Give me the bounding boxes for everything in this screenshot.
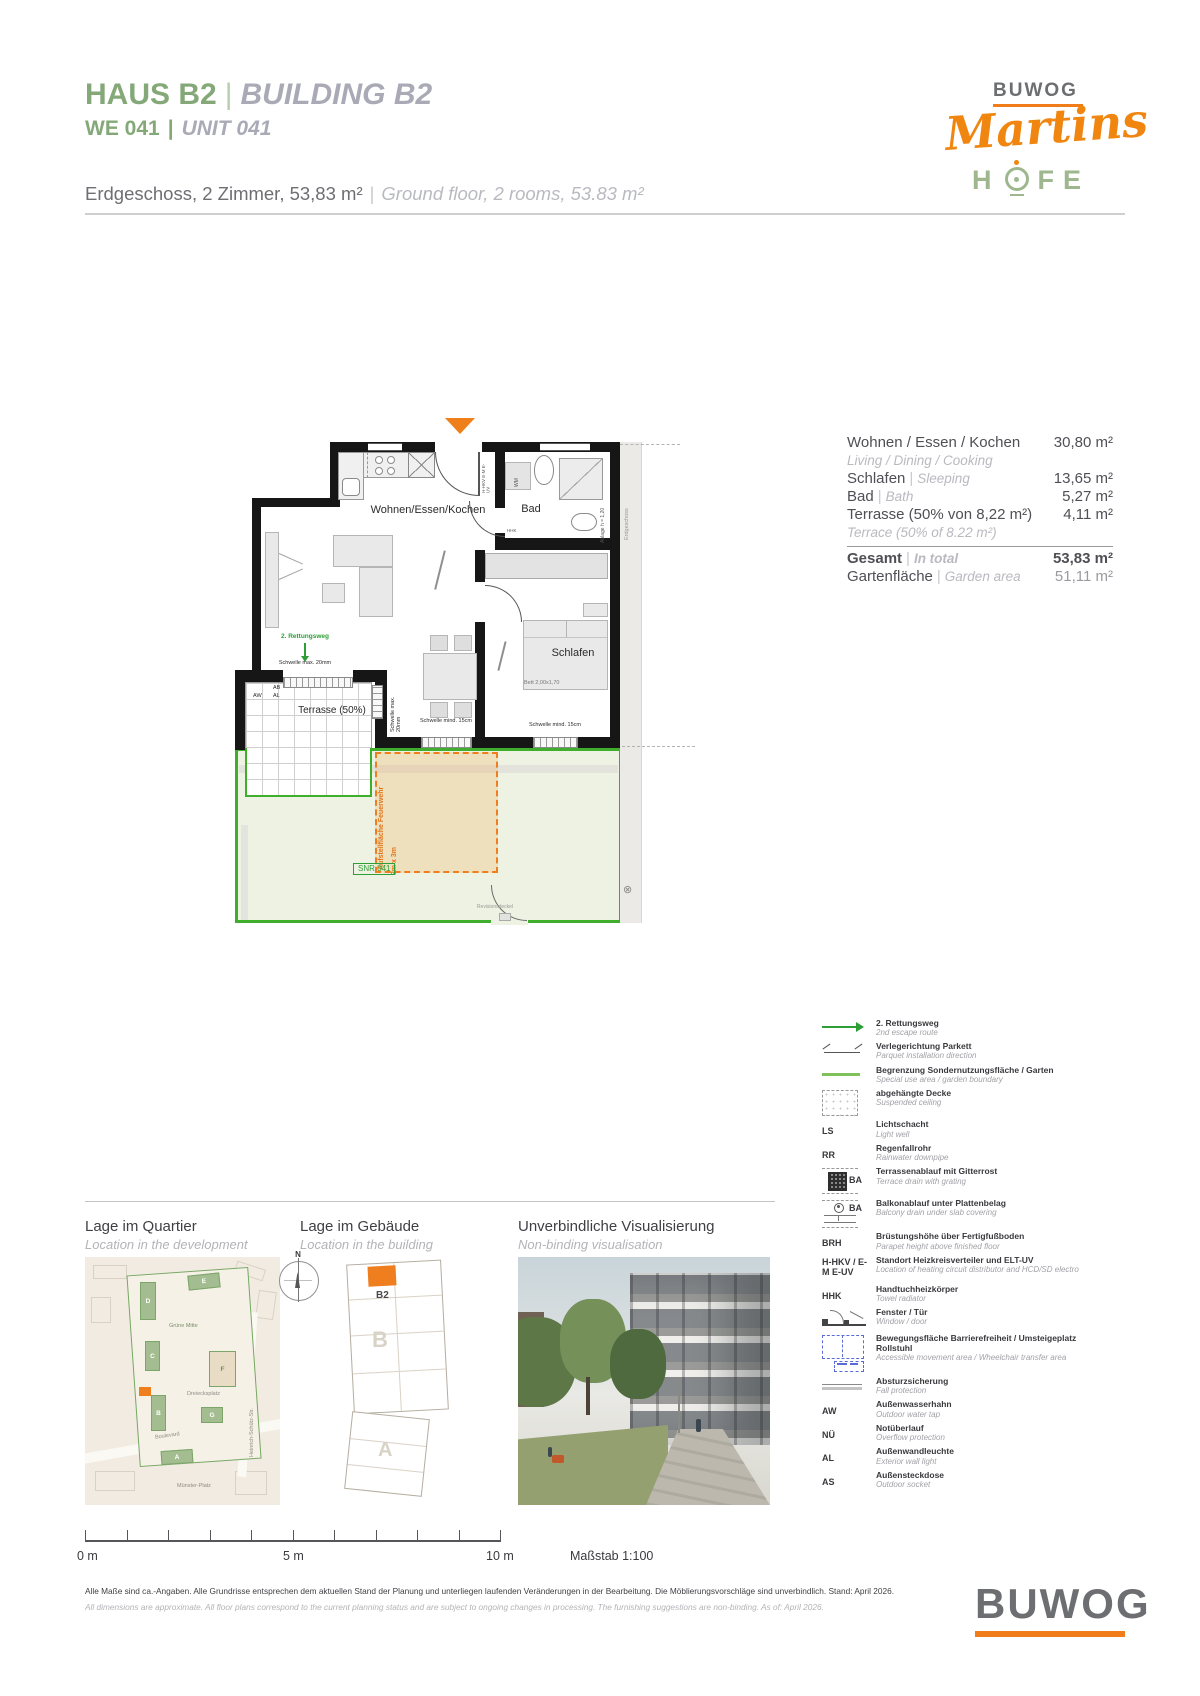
cooktop-icon bbox=[408, 452, 435, 478]
area-garden-en: Garden area bbox=[945, 569, 1021, 584]
sofa-back bbox=[333, 535, 393, 567]
visual-panel-subtitle: Non-binding visualisation bbox=[518, 1237, 663, 1252]
legend-item: LS LichtschachtLight well bbox=[822, 1119, 1084, 1139]
ls-abbr: LS bbox=[822, 1126, 834, 1136]
unit-english: UNIT 041 bbox=[182, 117, 272, 140]
dining-table bbox=[423, 653, 477, 700]
dashed-extension-top bbox=[620, 444, 680, 445]
legend-item: BA Balkonablauf unter PlattenbelagBalcon… bbox=[822, 1198, 1084, 1228]
as-abbr: AS bbox=[822, 1477, 835, 1487]
burner-icon bbox=[387, 456, 395, 464]
terrace-door-threshold bbox=[283, 677, 353, 688]
map-block-d: D bbox=[140, 1282, 156, 1320]
area-row-terrace: Terrasse (50% von 8,22 m²) 4,11 m² bbox=[847, 506, 1113, 524]
coffee-table bbox=[322, 583, 345, 603]
floor-plan: Aufstellfläche Feuerwehr 3m x 3m SNR 041… bbox=[215, 385, 645, 930]
threshold-max-label: Schwelle max. 20mm bbox=[273, 661, 337, 667]
building-unit-label: B2 bbox=[376, 1290, 389, 1301]
hofe-h: H bbox=[972, 165, 1001, 195]
washing-machine: WM bbox=[505, 462, 531, 490]
area-garden-value: 51,11 m² bbox=[1055, 568, 1113, 586]
legend-item: AW AußenwasserhahnOutdoor water tap bbox=[822, 1399, 1084, 1419]
quartier-panel-subtitle: Location in the development bbox=[85, 1237, 248, 1252]
area-garden-de: Gartenfläche bbox=[847, 568, 933, 585]
wall-right bbox=[610, 442, 620, 748]
map-block-c: C bbox=[145, 1341, 160, 1371]
legend-item: abgehängte DeckeSuspended ceiling bbox=[822, 1088, 1084, 1116]
unit-info-english: Ground floor, 2 rooms, 53.83 m² bbox=[381, 183, 643, 204]
area-total-en: In total bbox=[914, 551, 958, 566]
viz-gardener bbox=[548, 1447, 552, 1457]
fall-protection-icon bbox=[822, 1376, 876, 1396]
quartier-panel-title: Lage im Quartier bbox=[85, 1218, 197, 1235]
area-row-total: Gesamt|In total 53,83 m² bbox=[847, 550, 1113, 568]
drain-cross-symbol: ⊗ bbox=[623, 885, 632, 897]
unit-german: WE 041 bbox=[85, 117, 160, 140]
disclaimer-english: All dimensions are approximate. All floo… bbox=[85, 1602, 824, 1612]
revision-cover-label: Revisionsdeckel bbox=[463, 905, 527, 910]
burner-icon bbox=[375, 467, 383, 475]
wall-bath-left-upper bbox=[495, 442, 505, 508]
site-map: D E C F B G A Grüne Mitte Dreiecksplatz … bbox=[85, 1257, 280, 1505]
entrance-marker-icon bbox=[445, 418, 475, 434]
parquet-direction-mark bbox=[497, 641, 506, 670]
entrance-door-leaf bbox=[478, 452, 480, 496]
unit-info-line: Erdgeschoss, 2 Zimmer, 53,83 m²|Ground f… bbox=[85, 183, 644, 205]
bedroom-label: Schlafen bbox=[541, 648, 605, 660]
area-total-de: Gesamt bbox=[847, 550, 902, 567]
legend-item: RR RegenfallrohrRainwater downpipe bbox=[822, 1143, 1084, 1163]
kitchen-window bbox=[368, 443, 402, 451]
viz-lawn bbox=[518, 1425, 668, 1505]
area-terrace-value: 4,11 m² bbox=[1063, 506, 1113, 524]
terrace-label: Terrasse (50%) bbox=[285, 706, 379, 717]
wall-step bbox=[252, 498, 340, 507]
legend-item: Verlegerichtung ParkettParquet installat… bbox=[822, 1041, 1084, 1061]
area-row-bath: Bad|Bath 5,27 m² bbox=[847, 488, 1113, 506]
hhk-abbr: HHK bbox=[822, 1291, 842, 1301]
bed-headboard-line bbox=[524, 637, 607, 638]
burner-icon bbox=[375, 456, 383, 464]
disclaimer-german: Alle Maße sind ca.-Angaben. Alle Grundri… bbox=[85, 1586, 894, 1596]
shelf-label: Ablage h = 1,20 bbox=[601, 493, 606, 543]
map-block-a: A bbox=[161, 1449, 194, 1465]
entrance-door-arc bbox=[435, 452, 479, 496]
panels-divider bbox=[85, 1201, 775, 1202]
snr-tag: SNR 041 bbox=[353, 863, 395, 875]
scale-10m: 10 m bbox=[486, 1549, 514, 1563]
wall-closet bbox=[475, 550, 485, 582]
visualisation-image bbox=[518, 1257, 770, 1505]
legend-item: BA Terrassenablauf mit GitterrostTerrace… bbox=[822, 1166, 1084, 1194]
visual-panel-title: Unverbindliche Visualisierung bbox=[518, 1218, 715, 1235]
area-bath-en: Bath bbox=[886, 489, 914, 504]
chair bbox=[430, 702, 448, 718]
shower bbox=[559, 458, 603, 500]
parquet-direction-icon bbox=[822, 1041, 876, 1061]
unit-title: WE 041|UNIT 041 bbox=[85, 117, 271, 141]
area-row-living: Wohnen / Essen / Kochen 30,80 m² bbox=[847, 434, 1113, 452]
wall-bottom-low-b bbox=[472, 737, 533, 748]
bath-label: Bad bbox=[513, 504, 549, 516]
area-total-value: 53,83 m² bbox=[1053, 550, 1113, 568]
parquet-direction-mark bbox=[434, 550, 445, 589]
tv-line bbox=[279, 568, 303, 579]
escape-route-icon bbox=[822, 1018, 876, 1038]
legend-item: Bewegungsfläche Barrierefreiheit / Umste… bbox=[822, 1333, 1084, 1373]
hkv-abbr: H-HKV / E-M E-UV bbox=[822, 1257, 874, 1278]
tv-sideboard bbox=[265, 532, 279, 628]
burner-icon bbox=[387, 467, 395, 475]
area-sleeping-en: Sleeping bbox=[917, 471, 970, 486]
escape-route-label: 2. Rettungsweg bbox=[273, 634, 337, 641]
area-row-terrace-en: Terrace (50% of 8.22 m²) bbox=[847, 524, 1113, 542]
footer-logo: BUWOG bbox=[975, 1580, 1151, 1637]
viz-person bbox=[696, 1419, 701, 1432]
viz-tree-trunk bbox=[586, 1377, 590, 1415]
area-bath-value: 5,27 m² bbox=[1062, 488, 1113, 506]
bed-pillow-divider bbox=[566, 621, 567, 637]
area-sleeping-value: 13,65 m² bbox=[1054, 470, 1113, 488]
kitchen-sink bbox=[342, 478, 360, 496]
viz-mower bbox=[552, 1455, 564, 1463]
title-english: BUILDING B2 bbox=[241, 78, 433, 111]
terrace-boundary bbox=[245, 748, 372, 797]
legend-item: Begrenzung Sondernutzungsfläche / Garten… bbox=[822, 1065, 1084, 1085]
threshold-max-label-vertical: Schwelle max. 20mm bbox=[391, 680, 403, 732]
scale-ratio: Maßstab 1:100 bbox=[570, 1549, 653, 1563]
toilet bbox=[534, 455, 554, 485]
building-plan: B2 B A bbox=[320, 1257, 490, 1505]
terrace-drain-icon: BA bbox=[822, 1166, 876, 1194]
suspended-ceiling-icon bbox=[822, 1088, 876, 1116]
nue-abbr: NÜ bbox=[822, 1430, 835, 1440]
area-row-sleeping: Schlafen|Sleeping 13,65 m² bbox=[847, 470, 1113, 488]
legend-item: BRH Brüstungshöhe über FertigfußbodenPar… bbox=[822, 1231, 1084, 1251]
legend-item: 2. Rettungsweg2nd escape route bbox=[822, 1018, 1084, 1038]
nightstand bbox=[583, 603, 608, 617]
side-strip-label: Erdgeschoss bbox=[625, 480, 631, 540]
hhk-marker-label: HHK bbox=[507, 529, 517, 534]
tv-line bbox=[279, 553, 303, 564]
ab-marker: AB bbox=[273, 686, 280, 692]
wardrobe bbox=[485, 553, 608, 579]
wall-bottom-low-c bbox=[578, 737, 620, 748]
area-table-divider bbox=[847, 546, 1113, 547]
bed-size-label: Bett 2,00x1,70 bbox=[524, 681, 559, 687]
hofe-fe: FE bbox=[1038, 165, 1091, 195]
bath-sink bbox=[571, 513, 597, 531]
chair bbox=[454, 702, 472, 718]
garden-boundary-icon bbox=[822, 1065, 876, 1085]
legend-item: AL AußenwandleuchteExterior wall light bbox=[822, 1446, 1084, 1466]
project-logo-script: Martins bbox=[943, 93, 1149, 161]
header-divider bbox=[85, 213, 1125, 215]
footer-buwog-wordmark: BUWOG bbox=[975, 1580, 1151, 1628]
area-sleeping-de: Schlafen bbox=[847, 470, 905, 487]
threshold-min-label-2: Schwelle mind. 15cm bbox=[520, 723, 590, 729]
aw-marker: AW bbox=[253, 694, 262, 700]
scale-0m: 0 m bbox=[77, 1549, 98, 1563]
rr-abbr: RR bbox=[822, 1150, 835, 1160]
building-letter-a: A bbox=[378, 1439, 392, 1462]
al-abbr: AL bbox=[822, 1453, 834, 1463]
legend: 2. Rettungsweg2nd escape route Verlegeri… bbox=[822, 1018, 1084, 1493]
area-living-de: Wohnen / Essen / Kochen bbox=[847, 434, 1020, 451]
hofe-o-icon bbox=[1005, 167, 1029, 191]
al-marker: AL bbox=[273, 694, 280, 700]
map-label-gruene-mitte: Grüne Mitte bbox=[169, 1323, 203, 1329]
bedroom-door-arc bbox=[485, 585, 522, 622]
area-table: Wohnen / Essen / Kochen 30,80 m² Living … bbox=[847, 434, 1113, 586]
map-unit-marker bbox=[139, 1387, 151, 1396]
legend-item: AS AußensteckdoseOutdoor socket bbox=[822, 1470, 1084, 1490]
legend-item: H-HKV / E-M E-UV Standort Heizkreisverte… bbox=[822, 1255, 1084, 1280]
map-block-f: F bbox=[209, 1351, 236, 1387]
floorplan-sheet: HAUS B2|BUILDING B2 WE 041|UNIT 041 Erdg… bbox=[0, 0, 1200, 1696]
legend-item: AbsturzsicherungFall protection bbox=[822, 1376, 1084, 1396]
kitchen-divider bbox=[367, 452, 368, 478]
threshold-min-label-1: Schwelle mind. 15cm bbox=[418, 719, 474, 725]
wall-living-left bbox=[252, 498, 261, 682]
balcony-drain-icon: BA bbox=[822, 1198, 876, 1228]
wall-bottom-low-a bbox=[387, 737, 421, 748]
wall-terrace-left bbox=[235, 670, 245, 750]
chair bbox=[454, 635, 472, 651]
building-letter-b: B bbox=[372, 1327, 388, 1353]
map-label-platz2: Münster-Platz bbox=[177, 1483, 211, 1489]
dashed-extension-garden bbox=[622, 746, 695, 747]
escape-route-arrow bbox=[304, 643, 306, 656]
hkv-marker-label: H-HKV E-M E-UV bbox=[482, 459, 491, 493]
chair bbox=[430, 635, 448, 651]
page-title: HAUS B2|BUILDING B2 bbox=[85, 78, 432, 112]
unit-info-german: Erdgeschoss, 2 Zimmer, 53,83 m² bbox=[85, 183, 363, 204]
viz-tree bbox=[610, 1329, 666, 1399]
legend-item: NÜ NotüberlaufOverflow protection bbox=[822, 1423, 1084, 1443]
brh-abbr: BRH bbox=[822, 1238, 842, 1248]
map-label-platz: Dreiecksplatz bbox=[187, 1391, 220, 1397]
unit-separator: | bbox=[160, 117, 182, 140]
bath-window bbox=[540, 443, 590, 451]
map-block-g: G bbox=[201, 1407, 223, 1423]
garden-door-opening bbox=[421, 737, 472, 748]
area-terrace-de: Terrasse (50% von 8,22 m²) bbox=[847, 506, 1032, 523]
garden-edge-strip bbox=[241, 825, 248, 920]
legend-item: HHK HandtuchheizkörperTowel radiator bbox=[822, 1284, 1084, 1304]
compass-icon: N bbox=[276, 1250, 320, 1304]
building-outline-upper bbox=[346, 1260, 449, 1415]
area-bath-de: Bad bbox=[847, 488, 874, 505]
legend-item: Fenster / TürWindow / door bbox=[822, 1307, 1084, 1329]
bedroom-window-opening bbox=[533, 737, 578, 748]
project-logo-caps: HFE bbox=[972, 165, 1090, 196]
sofa-seat bbox=[359, 567, 393, 617]
window-door-icon bbox=[822, 1307, 876, 1329]
map-block-b: B bbox=[151, 1395, 166, 1431]
title-separator: | bbox=[217, 78, 241, 111]
area-row-garden: Gartenfläche|Garden area 51,11 m² bbox=[847, 568, 1113, 586]
aw-abbr: AW bbox=[822, 1406, 837, 1416]
scale-5m: 5 m bbox=[283, 1549, 304, 1563]
viz-lamp-post bbox=[678, 1377, 680, 1433]
building-unit-highlight bbox=[367, 1265, 396, 1286]
title-german: HAUS B2 bbox=[85, 78, 217, 111]
fire-area-label: Aufstellfläche Feuerwehr bbox=[378, 765, 385, 870]
footer-buwog-underline bbox=[975, 1631, 1125, 1637]
wheelchair-area-icon bbox=[822, 1333, 876, 1373]
info-separator: | bbox=[363, 183, 382, 204]
living-room-label: Wohnen/Essen/Kochen bbox=[338, 505, 518, 517]
area-row-living-en: Living / Dining / Cooking bbox=[847, 452, 1113, 470]
revision-cover bbox=[499, 913, 511, 921]
map-label-street: Heinrich-Schütz-Str. bbox=[249, 1377, 255, 1457]
gebaeude-panel-title: Lage im Gebäude bbox=[300, 1218, 419, 1235]
washing-machine-label: WM bbox=[515, 469, 520, 487]
area-living-value: 30,80 m² bbox=[1054, 434, 1113, 452]
